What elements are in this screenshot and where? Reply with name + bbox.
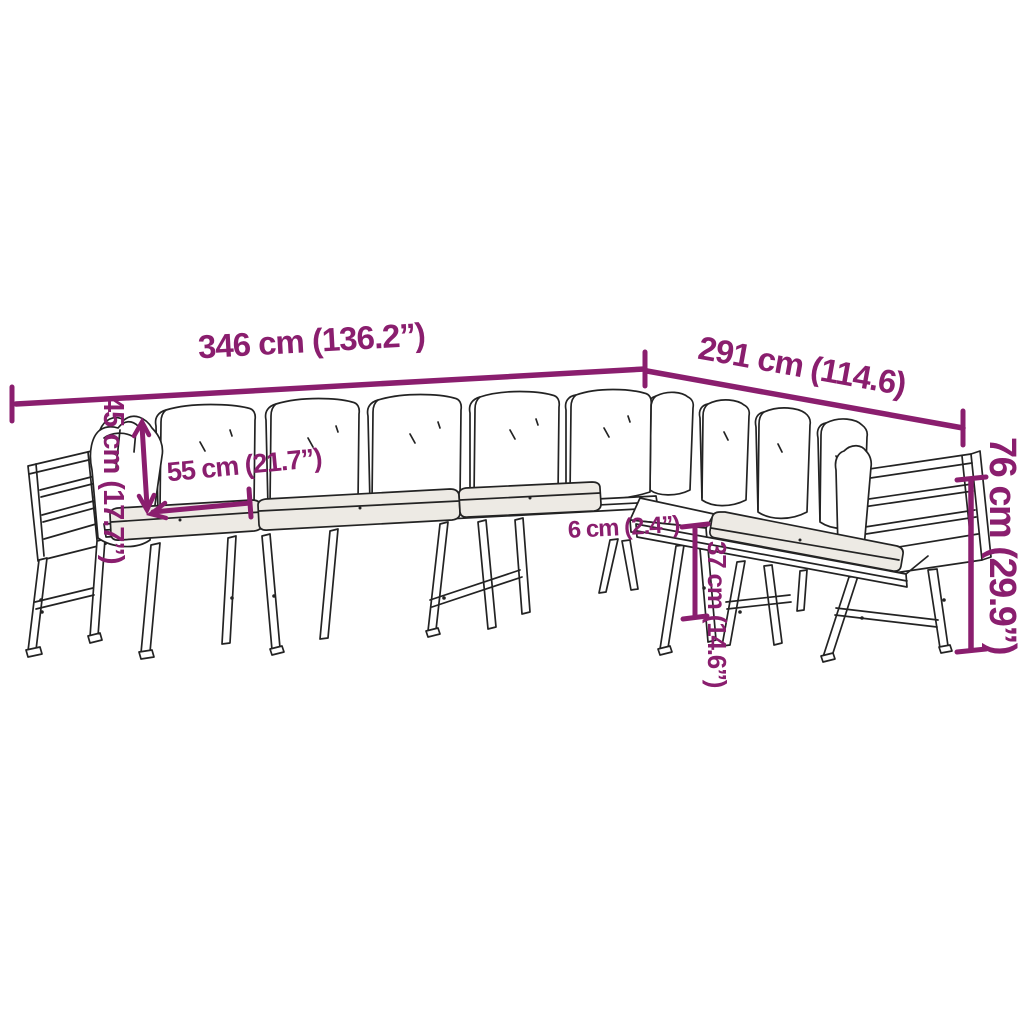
dimension-label-back-height: 45 cm (17.7”) bbox=[97, 396, 129, 564]
dimension-label-total-height: 76 cm (29.9”) bbox=[981, 437, 1023, 654]
dimension-label-main-length: 346 cm (136.2”) bbox=[197, 316, 426, 366]
dimension-label-clearance: 37 cm (14.6”) bbox=[702, 541, 732, 688]
dimension-label-side-length: 291 cm (114.6) bbox=[695, 329, 908, 403]
dimension-diagram: 346 cm (136.2”) 291 cm (114.6) 45 cm (17… bbox=[0, 0, 1024, 1024]
sofa-sketch bbox=[26, 390, 991, 663]
sofa-illustration: 346 cm (136.2”) 291 cm (114.6) 45 cm (17… bbox=[0, 0, 1024, 1024]
dimension-clearance: 37 cm (14.6”) bbox=[682, 524, 732, 688]
main-legs bbox=[139, 518, 530, 659]
